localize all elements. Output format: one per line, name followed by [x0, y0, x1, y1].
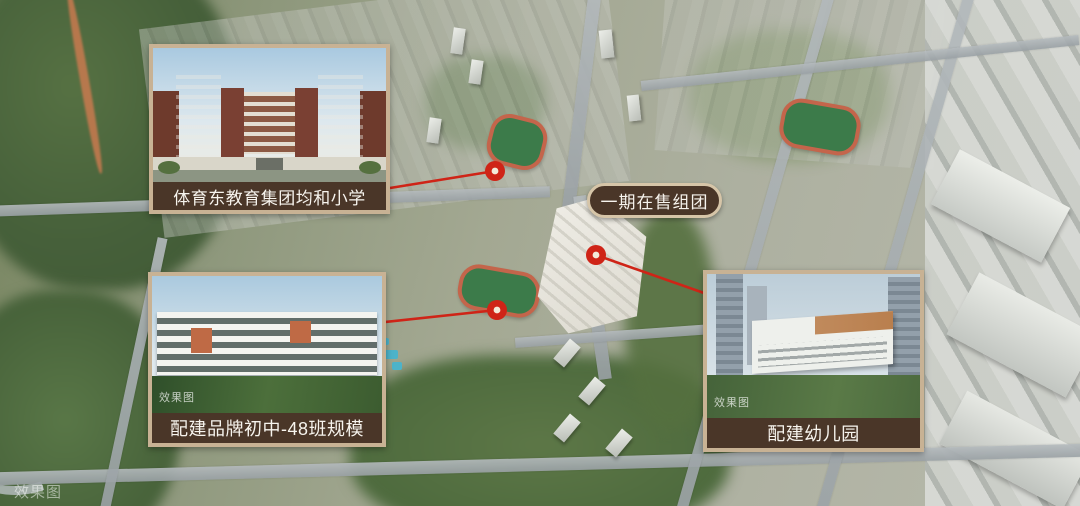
photo-building: [157, 312, 378, 375]
render-watermark: 效果图: [159, 389, 195, 405]
aerial-masterplan-canvas: 体育东教育集团均和小学 效果图 配建品牌初中-48班规模 效果图: [0, 0, 1080, 506]
photo-building: [360, 91, 386, 161]
kindergarten-photo: 效果图: [707, 274, 920, 418]
map-tower: [627, 94, 642, 121]
photo-building: [752, 311, 893, 374]
callout-label-kindergarten: 配建幼儿园: [707, 418, 920, 448]
photo-building: [318, 75, 362, 158]
primary-school-photo: [153, 48, 386, 182]
render-watermark: 效果图: [714, 394, 750, 410]
photo-windows: [757, 336, 886, 367]
callout-label-middle-school: 配建品牌初中-48班规模: [152, 413, 382, 443]
callout-middle-school: 效果图 配建品牌初中-48班规模: [148, 272, 386, 447]
photo-building: [176, 75, 220, 158]
callout-kindergarten: 效果图 配建幼儿园: [703, 270, 924, 452]
map-tower: [599, 29, 615, 58]
photo-building: [295, 88, 318, 158]
photo-tower: [888, 277, 920, 375]
connector-line-middle-school: [376, 310, 497, 323]
photo-building: [244, 92, 295, 154]
map-sports-field: [455, 261, 544, 321]
photo-tower: [716, 274, 744, 378]
phase1-site-pill: 一期在售组团: [587, 183, 722, 218]
middle-school-photo: 效果图: [152, 276, 382, 413]
callout-label-primary-school: 体育东教育集团均和小学: [153, 182, 386, 210]
callout-primary-school: 体育东教育集团均和小学: [149, 44, 390, 214]
map-pool: [392, 362, 402, 370]
photo-accent-panel: [191, 328, 212, 353]
map-pool: [384, 350, 398, 359]
photo-building: [221, 88, 244, 158]
photo-ground: [153, 170, 386, 182]
photo-tree: [158, 161, 180, 174]
photo-accent-panel: [290, 321, 311, 343]
photo-gate: [256, 158, 284, 170]
render-watermark-corner: 效果图: [14, 481, 62, 502]
photo-building: [153, 91, 179, 161]
